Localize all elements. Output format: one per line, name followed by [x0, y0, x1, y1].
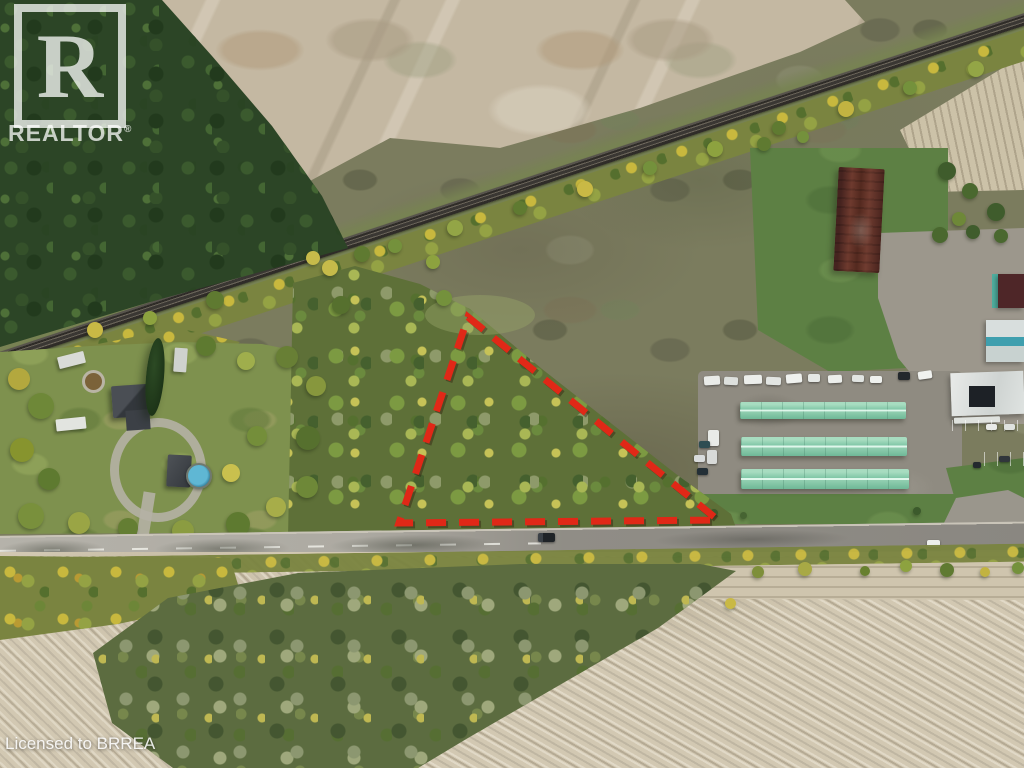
trailer [808, 374, 820, 382]
parked-car [999, 456, 1010, 462]
trailer [766, 377, 781, 386]
parked-car [1004, 424, 1015, 430]
realtor-wordmark: REALTOR® [8, 120, 158, 147]
parked-car [986, 424, 997, 430]
storage-building-roof [741, 437, 907, 456]
trailer [786, 373, 803, 383]
realtor-logo-letter: R [37, 20, 103, 112]
storage-building-roof [741, 469, 909, 489]
parked-car [699, 441, 710, 448]
roof-opening [969, 386, 995, 407]
license-caption: Licensed to BRREA [5, 734, 155, 754]
trailer [828, 375, 842, 384]
realtor-logo-box: R [14, 4, 126, 128]
trailer [724, 377, 738, 386]
trailer [744, 375, 762, 385]
pickup-truck [538, 533, 555, 542]
swimming-pool [186, 463, 212, 489]
shed-roof [173, 348, 188, 373]
trailer [852, 375, 864, 382]
box-truck [898, 372, 910, 380]
house-wing-roof [125, 409, 150, 431]
parked-car [697, 468, 708, 475]
storage-building-roof [740, 402, 906, 419]
barn-roof [833, 167, 884, 273]
garden-bed [82, 370, 105, 393]
registered-mark: ® [124, 124, 132, 135]
trailer [707, 450, 717, 464]
building-roof [998, 274, 1024, 308]
parked-car [694, 455, 705, 462]
aerial-photo: R REALTOR® Licensed to BRREA [0, 0, 1024, 768]
parked-car [973, 462, 981, 468]
building-roof [986, 320, 1024, 362]
trailer [704, 375, 721, 385]
trailer [870, 376, 882, 383]
